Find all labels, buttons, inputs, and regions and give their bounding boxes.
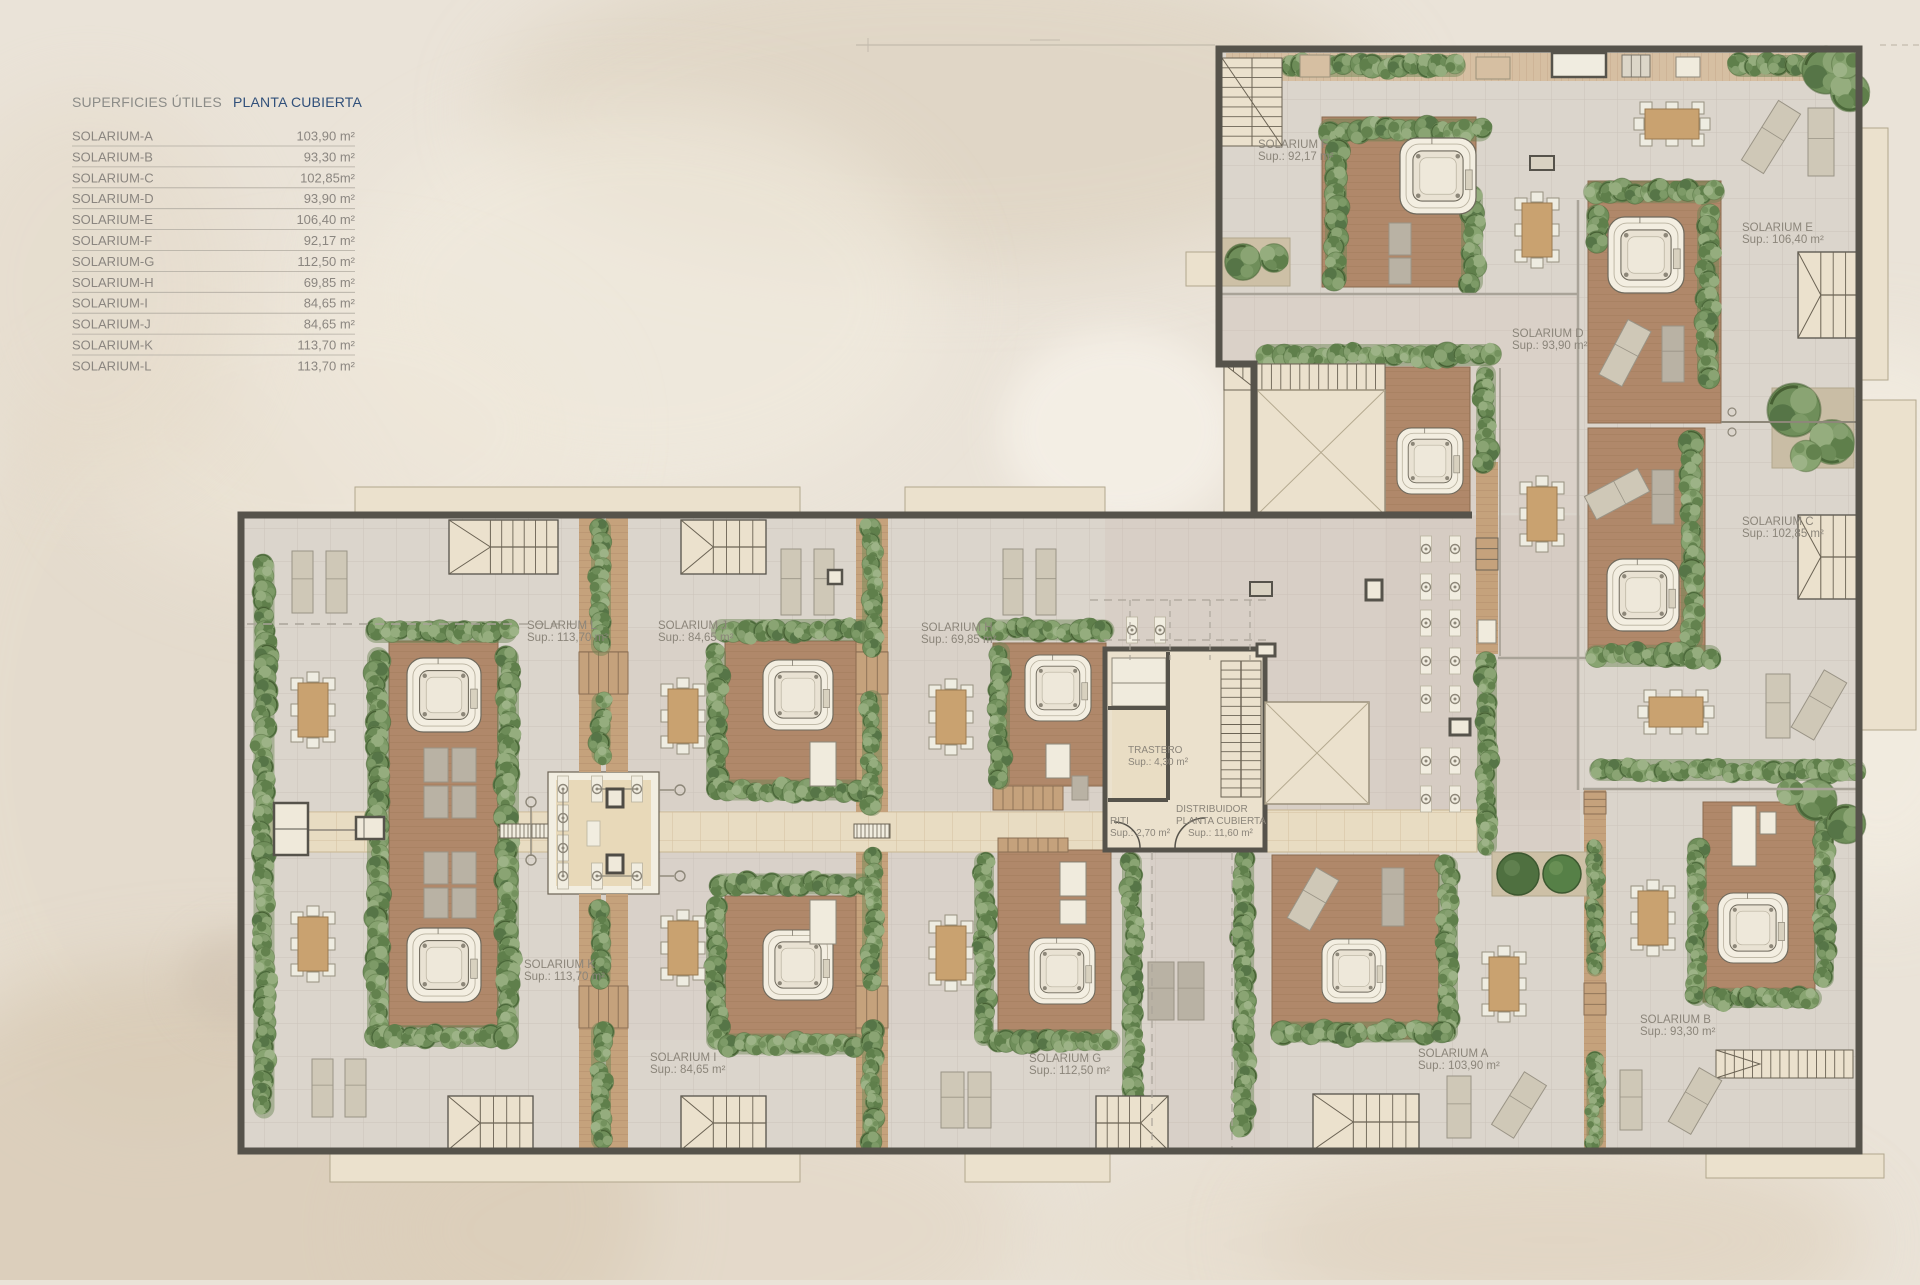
svg-text:SOLARIUM I: SOLARIUM I bbox=[650, 1052, 716, 1064]
svg-text:SOLARIUM-D: SOLARIUM-D bbox=[72, 191, 154, 206]
svg-text:RITI: RITI bbox=[1110, 816, 1129, 827]
svg-text:TRASTERO: TRASTERO bbox=[1128, 745, 1183, 756]
svg-text:Sup.: 84,65 m²: Sup.: 84,65 m² bbox=[658, 632, 734, 644]
svg-text:SOLARIUM-L: SOLARIUM-L bbox=[72, 358, 151, 373]
svg-text:Sup.: 4,30 m²: Sup.: 4,30 m² bbox=[1128, 757, 1189, 768]
svg-text:Sup.: 2,70 m²: Sup.: 2,70 m² bbox=[1110, 828, 1171, 839]
svg-text:SOLARIUM-C: SOLARIUM-C bbox=[72, 170, 154, 185]
svg-text:Sup.: 11,60 m²: Sup.: 11,60 m² bbox=[1188, 828, 1254, 839]
svg-text:Sup.: 103,90 m²: Sup.: 103,90 m² bbox=[1418, 1060, 1500, 1072]
svg-text:SOLARIUM-I: SOLARIUM-I bbox=[72, 296, 148, 311]
svg-text:SOLARIUM D: SOLARIUM D bbox=[1512, 328, 1584, 340]
svg-text:84,65 m²: 84,65 m² bbox=[304, 317, 356, 332]
svg-text:SOLARIUM E: SOLARIUM E bbox=[1742, 222, 1813, 234]
svg-text:SOLARIUM H: SOLARIUM H bbox=[921, 622, 993, 634]
svg-text:Sup.: 84,65 m²: Sup.: 84,65 m² bbox=[650, 1064, 726, 1076]
svg-text:SOLARIUM J: SOLARIUM J bbox=[658, 620, 727, 632]
svg-text:112,50 m²: 112,50 m² bbox=[297, 254, 355, 269]
svg-text:PLANTA CUBIERTA: PLANTA CUBIERTA bbox=[1176, 816, 1266, 827]
svg-text:69,85 m²: 69,85 m² bbox=[304, 275, 356, 290]
svg-text:Sup.: 69,85 m²: Sup.: 69,85 m² bbox=[921, 634, 997, 646]
svg-text:Sup.: 93,90 m²: Sup.: 93,90 m² bbox=[1512, 340, 1588, 352]
svg-text:Sup.: 113,70 m²: Sup.: 113,70 m² bbox=[524, 971, 605, 983]
svg-text:DISTRIBUIDOR: DISTRIBUIDOR bbox=[1176, 804, 1248, 815]
svg-text:Sup.: 113,70 m²: Sup.: 113,70 m² bbox=[527, 632, 608, 644]
svg-text:SOLARIUM-B: SOLARIUM-B bbox=[72, 149, 153, 164]
svg-text:SOLARIUM C: SOLARIUM C bbox=[1742, 516, 1814, 528]
svg-text:113,70 m²: 113,70 m² bbox=[297, 338, 355, 353]
svg-text:SOLARIUM-A: SOLARIUM-A bbox=[72, 129, 153, 144]
svg-text:84,65 m²: 84,65 m² bbox=[304, 296, 356, 311]
svg-text:Sup.: 92,17 m²: Sup.: 92,17 m² bbox=[1258, 151, 1334, 163]
svg-text:SOLARIUM G: SOLARIUM G bbox=[1029, 1053, 1101, 1065]
svg-text:93,30 m²: 93,30 m² bbox=[304, 149, 356, 164]
svg-text:SOLARIUM-F: SOLARIUM-F bbox=[72, 233, 152, 248]
svg-text:Sup.: 112,50 m²: Sup.: 112,50 m² bbox=[1029, 1065, 1110, 1077]
svg-text:SOLARIUM B: SOLARIUM B bbox=[1640, 1014, 1711, 1026]
svg-text:113,70 m²: 113,70 m² bbox=[297, 358, 355, 373]
svg-text:PLANTA CUBIERTA: PLANTA CUBIERTA bbox=[233, 94, 362, 110]
svg-text:SOLARIUM K: SOLARIUM K bbox=[524, 959, 595, 971]
svg-text:SOLARIUM A: SOLARIUM A bbox=[1418, 1048, 1489, 1060]
svg-text:92,17 m²: 92,17 m² bbox=[304, 233, 356, 248]
svg-text:Sup.: 93,30 m²: Sup.: 93,30 m² bbox=[1640, 1026, 1716, 1038]
svg-text:102,85m²: 102,85m² bbox=[300, 170, 356, 185]
svg-text:Sup.: 106,40 m²: Sup.: 106,40 m² bbox=[1742, 234, 1824, 246]
svg-text:SUPERFICIES ÚTILES: SUPERFICIES ÚTILES bbox=[72, 94, 222, 110]
svg-text:SOLARIUM F: SOLARIUM F bbox=[1258, 139, 1328, 151]
svg-text:103,90 m²: 103,90 m² bbox=[296, 129, 355, 144]
svg-text:93,90 m²: 93,90 m² bbox=[304, 191, 356, 206]
svg-text:106,40 m²: 106,40 m² bbox=[296, 212, 355, 227]
svg-text:SOLARIUM-J: SOLARIUM-J bbox=[72, 317, 151, 332]
svg-text:Sup.: 102,85 m²: Sup.: 102,85 m² bbox=[1742, 528, 1824, 540]
svg-text:SOLARIUM-G: SOLARIUM-G bbox=[72, 254, 154, 269]
svg-text:SOLARIUM-H: SOLARIUM-H bbox=[72, 275, 154, 290]
svg-text:SOLARIUM L: SOLARIUM L bbox=[527, 620, 597, 632]
svg-text:SOLARIUM-K: SOLARIUM-K bbox=[72, 338, 153, 353]
svg-text:SOLARIUM-E: SOLARIUM-E bbox=[72, 212, 153, 227]
